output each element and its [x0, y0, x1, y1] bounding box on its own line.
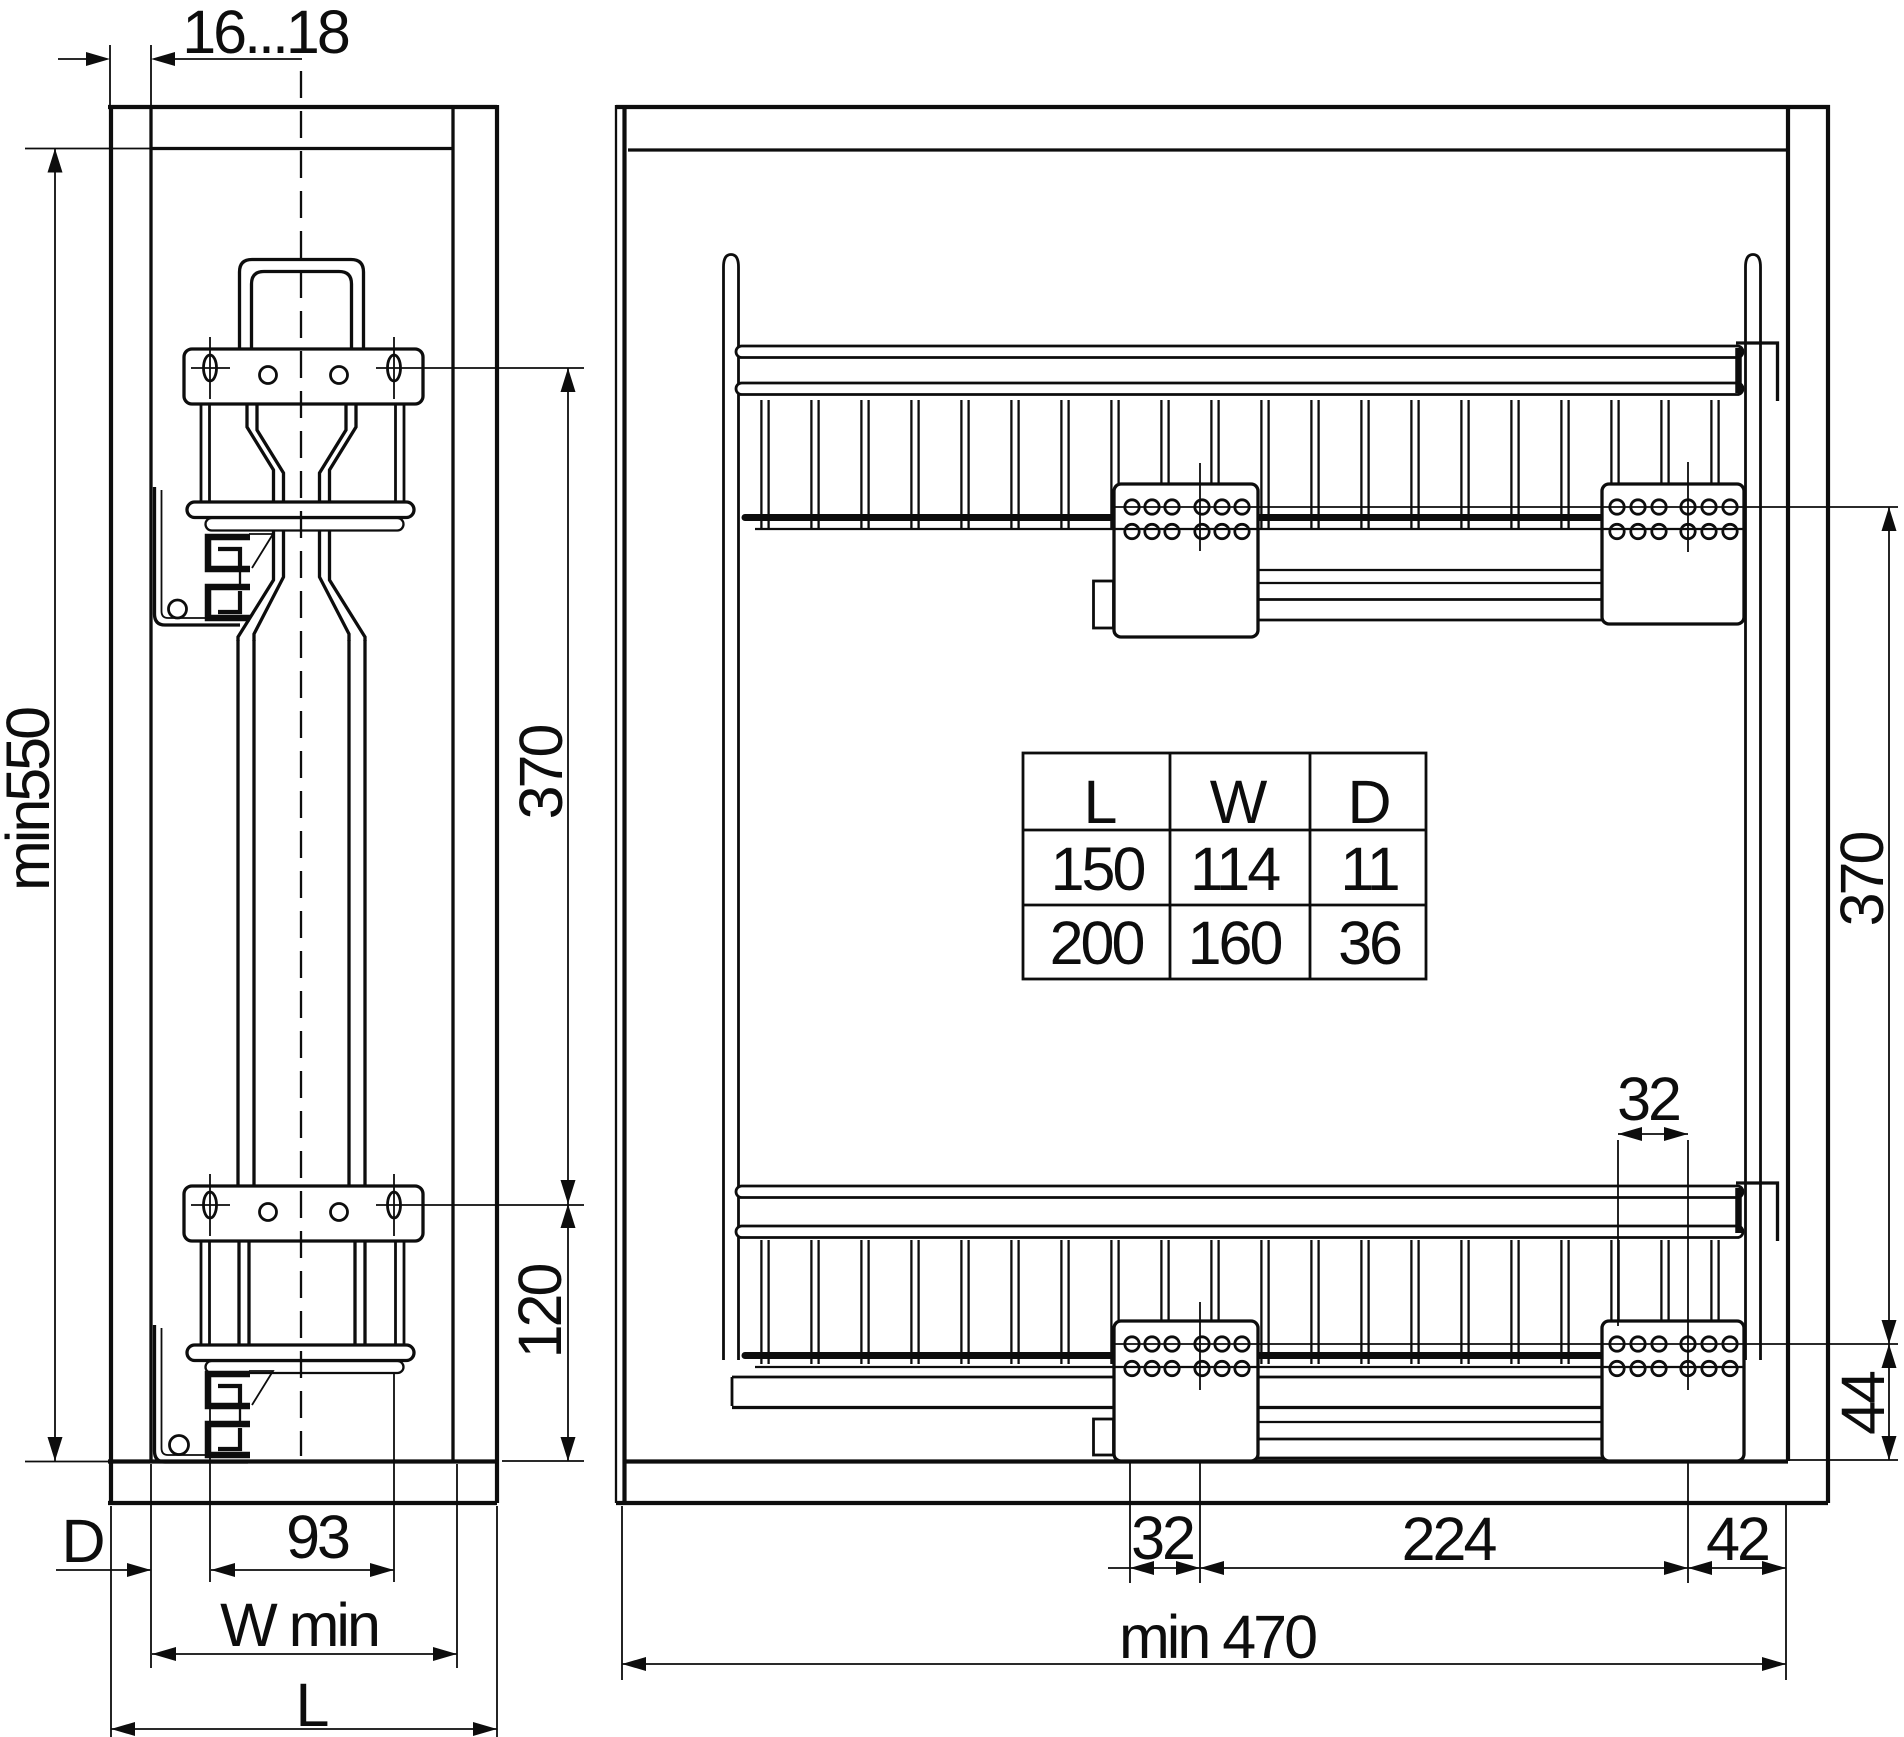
- svg-text:36: 36: [1338, 909, 1401, 977]
- svg-text:224: 224: [1402, 1505, 1497, 1573]
- svg-text:114: 114: [1190, 835, 1280, 903]
- svg-text:93: 93: [286, 1503, 349, 1571]
- svg-text:370: 370: [1828, 833, 1896, 927]
- svg-text:L: L: [296, 1671, 328, 1737]
- svg-text:32: 32: [1617, 1065, 1679, 1133]
- svg-text:42: 42: [1706, 1505, 1768, 1573]
- svg-text:120: 120: [506, 1265, 574, 1359]
- svg-text:370: 370: [507, 726, 575, 820]
- svg-text:L: L: [1084, 768, 1116, 836]
- svg-text:160: 160: [1188, 909, 1282, 977]
- svg-text:D: D: [1347, 768, 1389, 836]
- svg-text:32: 32: [1131, 1504, 1193, 1572]
- svg-text:min 470: min 470: [1119, 1603, 1316, 1671]
- svg-text:min550: min550: [0, 708, 62, 891]
- svg-text:200: 200: [1050, 909, 1144, 977]
- svg-text:W min: W min: [220, 1591, 378, 1659]
- svg-text:W: W: [1210, 768, 1268, 836]
- svg-text:11: 11: [1340, 835, 1397, 903]
- svg-text:16...18: 16...18: [182, 0, 349, 66]
- svg-text:D: D: [61, 1507, 103, 1575]
- svg-text:150: 150: [1051, 835, 1145, 903]
- svg-text:44: 44: [1829, 1371, 1897, 1435]
